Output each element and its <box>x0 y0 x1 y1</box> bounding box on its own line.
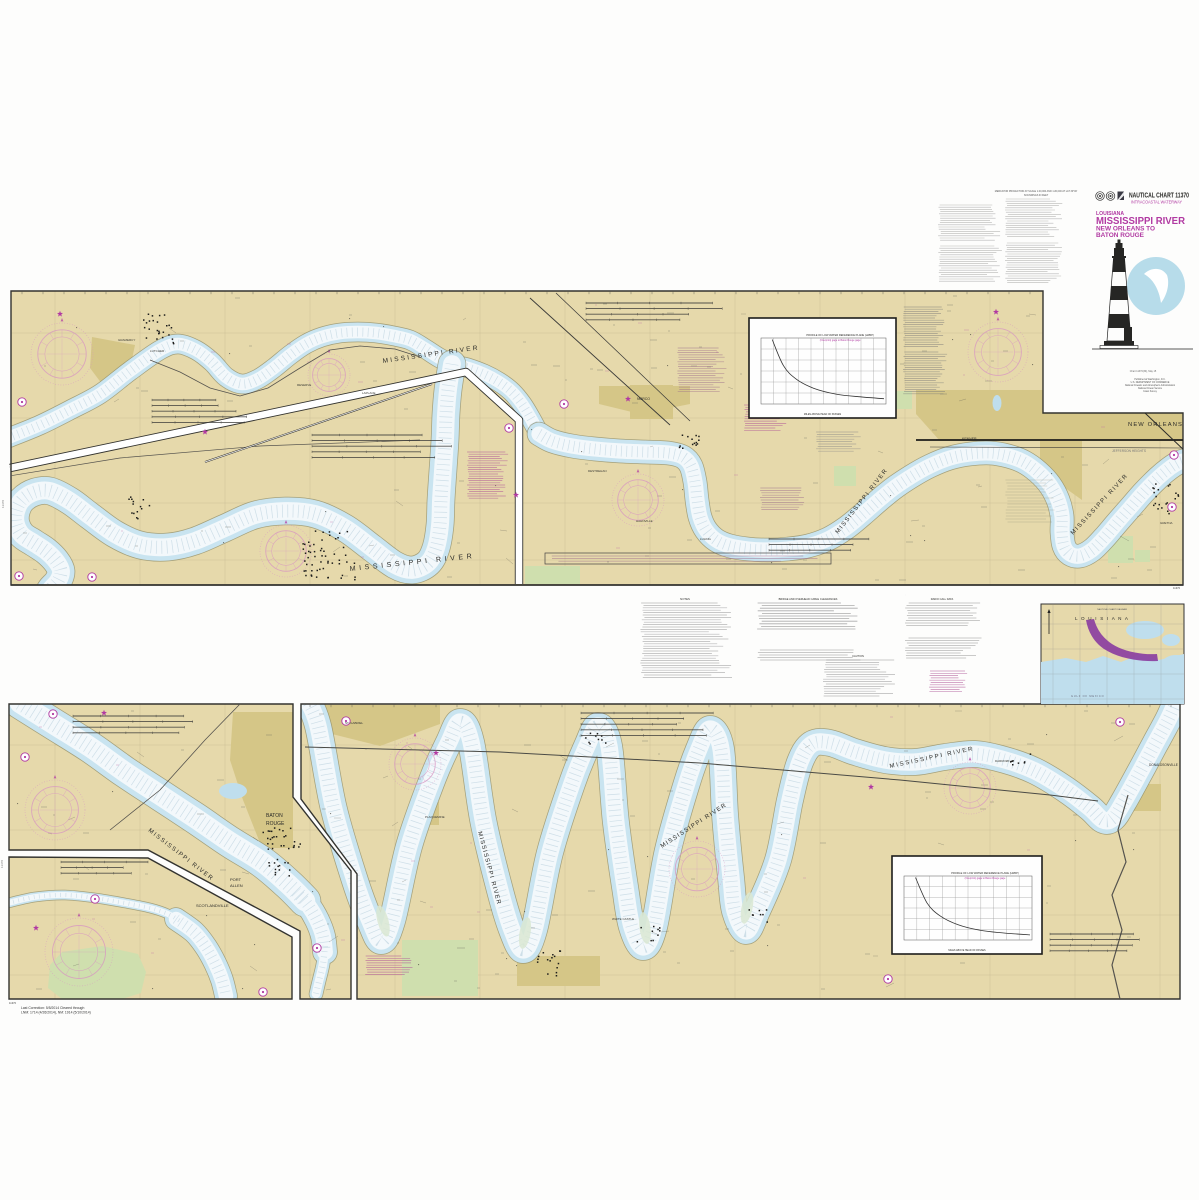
svg-text:SOUNDINGS IN FEET: SOUNDINGS IN FEET <box>1024 194 1049 197</box>
svg-text:National Oceanic and Atmospher: National Oceanic and Atmospheric Adminis… <box>1125 384 1176 387</box>
svg-text:NORCO: NORCO <box>637 397 650 401</box>
svg-text:PROFILE OF LOW WATER REFERENCE: PROFILE OF LOW WATER REFERENCE PLANE (LW… <box>951 871 1019 875</box>
svg-text:11370: 11370 <box>0 860 4 868</box>
svg-text:L O U I S I A N A: L O U I S I A N A <box>1075 616 1129 621</box>
svg-text:PROFILE OF LOW WATER REFERENCE: PROFILE OF LOW WATER REFERENCE PLANE (LW… <box>806 333 874 337</box>
svg-text:GULF OF MEXICO: GULF OF MEXICO <box>1071 694 1104 698</box>
svg-text:Coast Survey: Coast Survey <box>1143 390 1158 393</box>
svg-text:Published at Washington, D.C.: Published at Washington, D.C. <box>1134 378 1166 381</box>
svg-text:(Overprint) gage to Baton Roug: (Overprint) gage to Baton Rouge gage <box>965 877 1006 880</box>
svg-text:BRIDGE AND OVERHEAD CABLE CLEA: BRIDGE AND OVERHEAD CABLE CLEARANCES <box>779 597 838 601</box>
svg-text:RADIO CALL DATA: RADIO CALL DATA <box>931 597 954 601</box>
svg-text:SCOTLANDVILLE: SCOTLANDVILLE <box>196 903 229 908</box>
svg-text:BATON ROUGE: BATON ROUGE <box>1096 232 1145 239</box>
svg-text:NOTES: NOTES <box>680 597 690 601</box>
svg-text:PORT: PORT <box>230 877 242 882</box>
svg-text:ST. GABRIEL: ST. GABRIEL <box>345 721 364 725</box>
svg-text:ROUGE: ROUGE <box>266 821 285 827</box>
svg-text:MILES ABOVE HEAD OF PASSES: MILES ABOVE HEAD OF PASSES <box>948 949 986 952</box>
svg-text:DONALDSONVILLE: DONALDSONVILLE <box>1149 763 1178 767</box>
svg-text:CAUTION: CAUTION <box>852 654 864 658</box>
svg-text:LULING: LULING <box>700 537 712 541</box>
svg-text:HAHNVILLE: HAHNVILLE <box>636 519 653 523</box>
svg-text:GRAMERCY: GRAMERCY <box>118 338 135 342</box>
svg-text:LUTCHER: LUTCHER <box>150 349 165 353</box>
svg-text:MERCATOR PROJECTION AT SCALE 1: MERCATOR PROJECTION AT SCALE 1:40,000 AN… <box>995 190 1078 193</box>
svg-text:NAUTICAL CHART DIAGRAM: NAUTICAL CHART DIAGRAM <box>1097 608 1127 611</box>
svg-text:LAPLACE: LAPLACE <box>362 391 376 395</box>
svg-text:JEFFERSON HEIGHTS: JEFFERSON HEIGHTS <box>1112 449 1146 453</box>
svg-text:KENNER: KENNER <box>962 437 977 441</box>
svg-text:Last Correction: 5/5/2014 Cl: Last Correction: 5/5/2014 Cleared throug… <box>21 1006 84 1010</box>
svg-text:DESTREHAN: DESTREHAN <box>588 469 607 473</box>
svg-text:MILES ABOVE HEAD OF PASSES: MILES ABOVE HEAD OF PASSES <box>804 413 842 416</box>
svg-text:DARROW: DARROW <box>995 759 1009 763</box>
svg-text:GRETNA: GRETNA <box>1160 521 1173 525</box>
svg-text:National Ocean Service: National Ocean Service <box>1138 387 1163 390</box>
svg-text:11370: 11370 <box>1 500 5 508</box>
svg-text:WHITE CASTLE: WHITE CASTLE <box>612 917 634 921</box>
svg-text:NEW ORLEANS: NEW ORLEANS <box>1128 422 1183 428</box>
svg-text:INTRACOASTAL WATERWAY: INTRACOASTAL WATERWAY <box>1131 200 1182 205</box>
svg-text:ALLEN: ALLEN <box>230 883 243 888</box>
svg-text:PLAQUEMINE: PLAQUEMINE <box>425 815 445 819</box>
svg-text:(Overprint) gage to Baton Roug: (Overprint) gage to Baton Rouge gage <box>820 339 861 342</box>
svg-text:U.S. DEPARTMENT OF COMMERCE: U.S. DEPARTMENT OF COMMERCE <box>1131 381 1170 384</box>
svg-text:RESERVE: RESERVE <box>297 383 311 387</box>
svg-text:Chart 11370(30), May 15: Chart 11370(30), May 15 <box>1130 370 1157 373</box>
svg-text:LNM: 1714 (4/26/2014), NM: 191: LNM: 1714 (4/26/2014), NM: 1914 (5/10/20… <box>21 1011 91 1015</box>
svg-text:11370: 11370 <box>1173 586 1181 590</box>
svg-text:NAUTICAL CHART 11370: NAUTICAL CHART 11370 <box>1129 191 1189 200</box>
svg-text:11370: 11370 <box>9 1001 17 1005</box>
svg-text:BATON: BATON <box>266 813 283 819</box>
